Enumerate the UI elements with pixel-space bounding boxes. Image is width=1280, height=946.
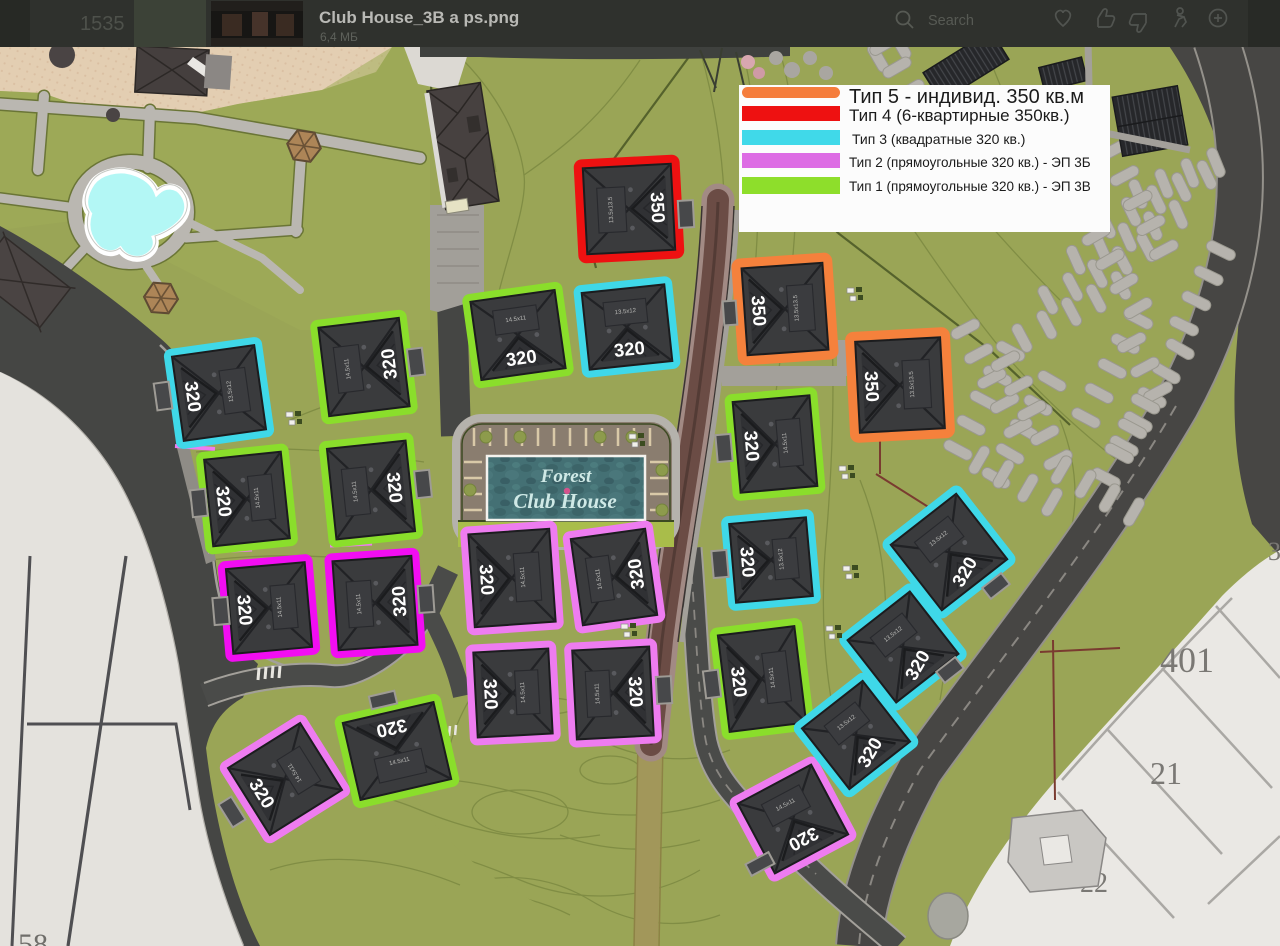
svg-text:Club House_3B a ps.png: Club House_3B a ps.png — [319, 8, 519, 27]
svg-text:Search: Search — [928, 13, 974, 29]
svg-text:320: 320 — [727, 665, 752, 698]
svg-text:21: 21 — [1150, 755, 1182, 791]
svg-text:350: 350 — [647, 192, 670, 224]
svg-text:320: 320 — [736, 546, 760, 579]
svg-text:Тип 4 (6-квартирные 350кв.): Тип 4 (6-квартирные 350кв.) — [849, 106, 1070, 125]
svg-text:Тип 5 - индивид. 350 кв.м: Тип 5 - индивид. 350 кв.м — [849, 86, 1084, 108]
svg-text:320: 320 — [233, 594, 257, 627]
svg-text:320: 320 — [625, 676, 648, 708]
svg-text:320: 320 — [476, 564, 499, 596]
svg-text:1535: 1535 — [80, 13, 125, 35]
svg-text:320: 320 — [623, 557, 648, 590]
svg-text:14.5x11: 14.5x11 — [594, 683, 601, 705]
svg-text:14.5x11: 14.5x11 — [520, 681, 527, 703]
svg-text:320: 320 — [377, 347, 402, 380]
svg-text:350: 350 — [748, 295, 771, 327]
svg-text:320: 320 — [480, 678, 503, 710]
svg-text:320: 320 — [504, 345, 537, 370]
svg-text:Тип 1 (прямоугольные 320 кв.): Тип 1 (прямоугольные 320 кв.) - ЭП 3В — [849, 179, 1091, 194]
svg-text:320: 320 — [387, 585, 410, 617]
svg-text:58: 58 — [18, 928, 48, 946]
svg-text:401: 401 — [1160, 640, 1214, 680]
svg-text:3: 3 — [1268, 537, 1280, 566]
svg-text:Тип 3 (квадратные 320 кв.): Тип 3 (квадратные 320 кв.) — [852, 131, 1025, 147]
svg-text:Forest: Forest — [540, 466, 592, 487]
svg-text:320: 320 — [613, 337, 646, 361]
svg-text:350: 350 — [861, 370, 884, 402]
svg-text:320: 320 — [383, 471, 407, 504]
svg-text:320: 320 — [181, 380, 206, 413]
svg-text:6,4 МБ: 6,4 МБ — [320, 30, 358, 44]
svg-text:320: 320 — [212, 485, 236, 518]
svg-text:320: 320 — [740, 430, 764, 463]
svg-text:Тип 2 (прямоугольные 320 кв.): Тип 2 (прямоугольные 320 кв.) - ЭП 3Б — [849, 155, 1091, 170]
